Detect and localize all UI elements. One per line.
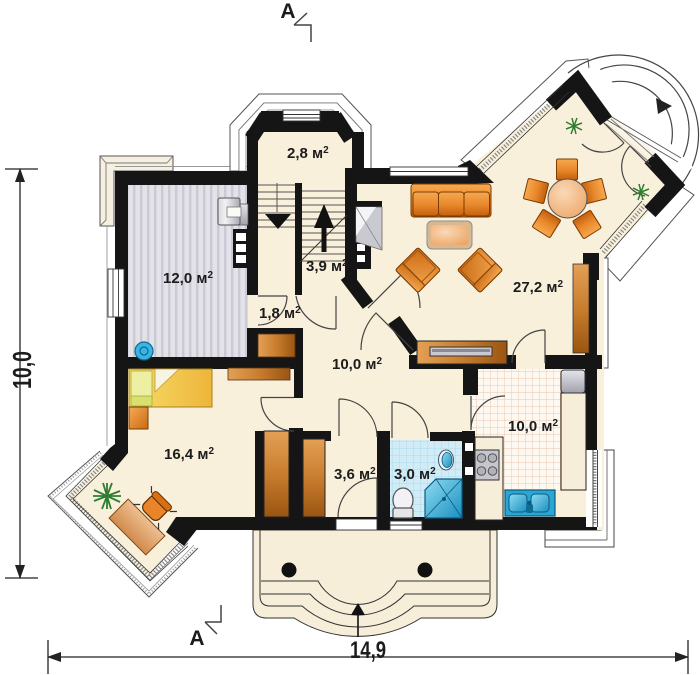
svg-text:3,6 м2: 3,6 м2	[334, 466, 376, 483]
svg-text:1,8 м2: 1,8 м2	[259, 305, 301, 322]
svg-text:A: A	[189, 627, 204, 650]
svg-text:27,2 м2: 27,2 м2	[513, 279, 563, 296]
svg-text:16,4 м2: 16,4 м2	[164, 446, 214, 463]
svg-text:A: A	[280, 0, 295, 23]
svg-text:14,9: 14,9	[350, 637, 386, 664]
svg-text:10,0 м2: 10,0 м2	[508, 418, 558, 435]
svg-text:10,0 м2: 10,0 м2	[332, 356, 382, 373]
svg-text:3,0 м2: 3,0 м2	[394, 466, 436, 483]
svg-text:10,0: 10,0	[7, 351, 37, 389]
svg-text:12,0 м2: 12,0 м2	[163, 270, 213, 287]
svg-text:3,9 м2: 3,9 м2	[306, 258, 348, 275]
svg-text:2,8 м2: 2,8 м2	[287, 145, 329, 162]
